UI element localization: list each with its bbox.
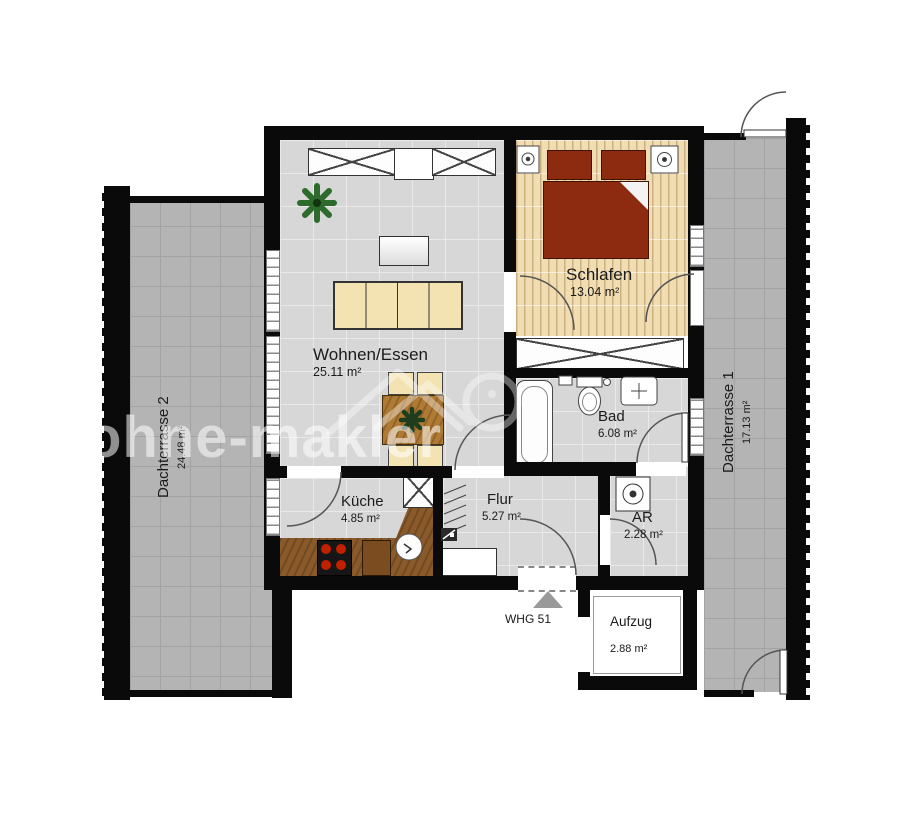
room-name: Flur xyxy=(482,491,521,510)
storage-door-opening xyxy=(600,515,610,565)
room-name: Bad xyxy=(598,408,637,427)
bathroom-left-wall xyxy=(504,336,516,476)
kitchen-window xyxy=(266,478,280,536)
room-label-bath: Bad 6.08 m² xyxy=(598,408,637,441)
dining-table xyxy=(382,395,444,445)
terrace-2-top-edge xyxy=(130,196,272,203)
bed xyxy=(543,181,649,259)
apartment-bottom-wall xyxy=(264,576,518,590)
cabinet xyxy=(394,148,434,180)
apartment-top-wall xyxy=(264,126,704,140)
sofa xyxy=(333,281,463,330)
living-room-window xyxy=(266,250,280,332)
kitchen-counter xyxy=(280,538,433,576)
room-area: 2.28 m² xyxy=(624,528,663,542)
chair xyxy=(417,445,443,468)
room-name: Schlafen xyxy=(566,264,632,285)
terrace-1-bottom-edge xyxy=(704,690,754,697)
pillow xyxy=(547,150,592,180)
door-arc xyxy=(741,92,786,137)
room-area: 17.13 m² xyxy=(741,401,753,444)
room-name: Wohnen/Essen xyxy=(313,344,428,365)
hall-cabinet xyxy=(441,548,497,576)
room-area: 24.48 m² xyxy=(176,426,188,469)
room-name: Aufzug xyxy=(610,614,652,631)
room-area: 25.11 m² xyxy=(313,365,428,381)
terrace-2-bottom-edge xyxy=(130,690,272,697)
chair xyxy=(388,445,414,468)
bedroom-door-opening xyxy=(504,272,516,332)
bedroom-window xyxy=(690,225,704,267)
terrace-2-left-wall xyxy=(102,186,130,700)
room-name: Dachterrasse 1 xyxy=(720,372,737,474)
bedroom-wardrobe xyxy=(516,338,684,370)
room-area: 13.04 m² xyxy=(566,285,632,301)
room-label-terrace-2: Dachterrasse 2 24.48 m² xyxy=(155,360,191,535)
room-area: 6.08 m² xyxy=(598,427,637,441)
room-label-bedroom: Schlafen 13.04 m² xyxy=(566,264,632,301)
terrace-1-top-edge xyxy=(704,133,746,140)
room-area: 4.85 m² xyxy=(341,512,384,526)
room-label-living: Wohnen/Essen 25.11 m² xyxy=(313,344,428,381)
wardrobe xyxy=(308,148,396,176)
room-area: 2.88 m² xyxy=(610,643,652,657)
room-label-elevator: Aufzug 2.88 m² xyxy=(610,614,652,657)
stove xyxy=(317,540,352,576)
kitchen-hall-wall xyxy=(433,466,443,576)
bathroom-door-opening xyxy=(636,462,686,476)
living-hall-wall xyxy=(264,466,287,478)
elevator-right-wall xyxy=(683,590,697,690)
dishwasher xyxy=(362,540,391,576)
room-area: 5.27 m² xyxy=(482,510,521,524)
elevator-bottom-wall xyxy=(578,676,697,690)
room-name: AR xyxy=(624,509,663,528)
bathroom-window xyxy=(690,398,704,456)
door-leaf xyxy=(744,130,786,137)
room-label-hall: Flur 5.27 m² xyxy=(482,491,521,524)
kitchen-door-opening xyxy=(287,466,341,478)
terrace-1-railing-dashes xyxy=(806,118,810,700)
terrace-2-right-wall xyxy=(272,578,292,698)
room-label-terrace-1: Dachterrasse 1 17.13 m² xyxy=(720,335,756,510)
apartment-bottom-wall xyxy=(576,576,704,590)
terrace-2-railing-dashes xyxy=(100,186,104,700)
living-room-window xyxy=(266,336,280,454)
bathroom-bottom-wall xyxy=(504,462,636,476)
terrace-2-floor xyxy=(130,196,272,697)
entrance-threshold xyxy=(518,566,576,592)
bathroom-top-wall xyxy=(516,368,688,378)
floor-plan: Wohnen/Essen 25.11 m² Schlafen 13.04 m² … xyxy=(0,0,920,830)
living-door-opening xyxy=(452,466,504,478)
bathtub xyxy=(516,380,553,470)
elevator-door-opening xyxy=(578,617,590,672)
pillow xyxy=(601,150,646,180)
room-name: Dachterrasse 2 xyxy=(155,397,172,499)
unit-label: WHG 51 xyxy=(495,612,561,626)
bedroom-terrace-door-opening xyxy=(690,270,704,326)
room-label-kitchen: Küche 4.85 m² xyxy=(341,493,384,526)
coffee-table xyxy=(379,236,429,266)
entrance-arrow xyxy=(533,591,563,608)
wardrobe xyxy=(432,148,496,176)
apartment-right-wall xyxy=(688,126,704,590)
room-name: Küche xyxy=(341,493,384,512)
room-label-storage: AR 2.28 m² xyxy=(624,509,663,542)
